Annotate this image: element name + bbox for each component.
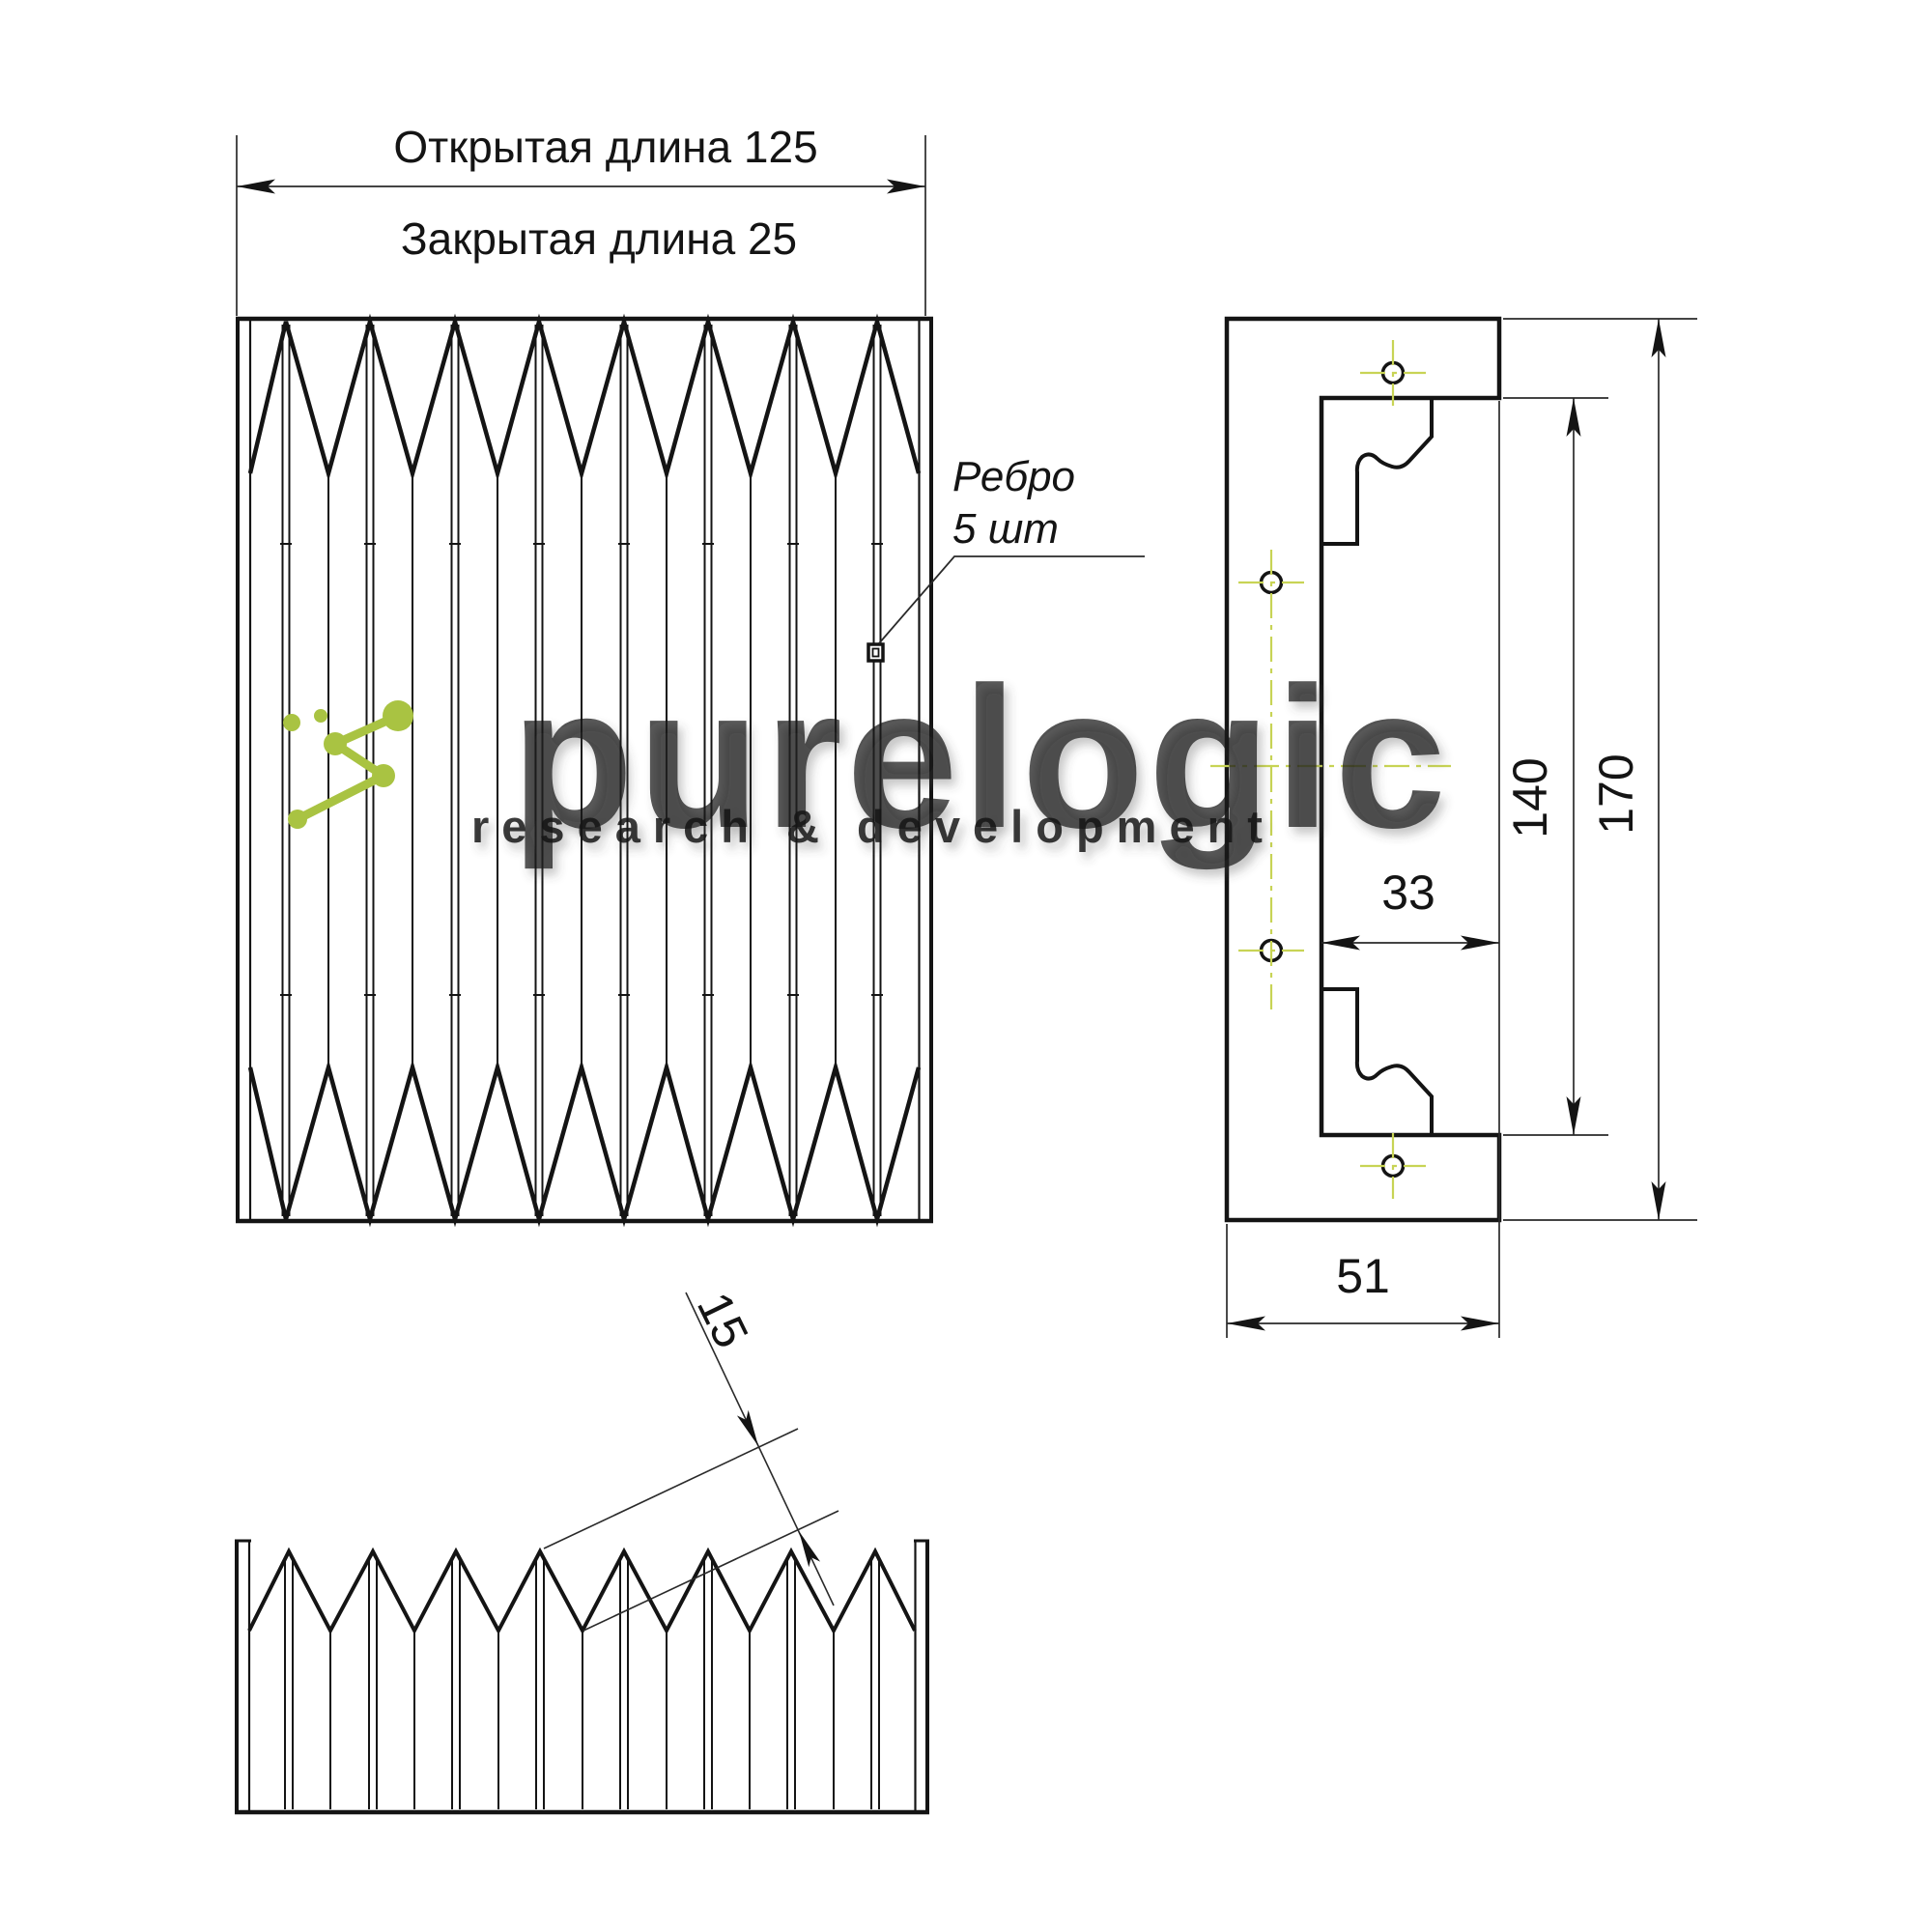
dim-15: 15 — [687, 1284, 759, 1356]
dim-140: 140 — [1503, 757, 1557, 838]
dim-51: 51 — [1336, 1249, 1390, 1303]
open-length-label: Открытая длина 125 — [393, 122, 817, 172]
closed-length-label: Закрытая длина 25 — [401, 213, 797, 264]
rib-note-line1: Ребро — [952, 453, 1075, 500]
valley-verticals — [330, 1633, 834, 1809]
technical-drawing: Ребро 5 шт Открытая длина 125 Закрытая д… — [0, 0, 1932, 1932]
watermark-tagline: research & development — [471, 801, 1275, 852]
dim-33: 33 — [1381, 866, 1435, 920]
drawing-page: Ребро 5 шт Открытая длина 125 Закрытая д… — [0, 0, 1932, 1932]
watermark: purelogic research & development — [471, 646, 1450, 870]
dim-170: 170 — [1589, 753, 1643, 834]
molecule-logo-icon — [283, 700, 413, 829]
bottom-view-profile — [235, 1540, 929, 1812]
rib-note-line2: 5 шт — [952, 505, 1059, 553]
rib-marker — [868, 556, 1145, 661]
